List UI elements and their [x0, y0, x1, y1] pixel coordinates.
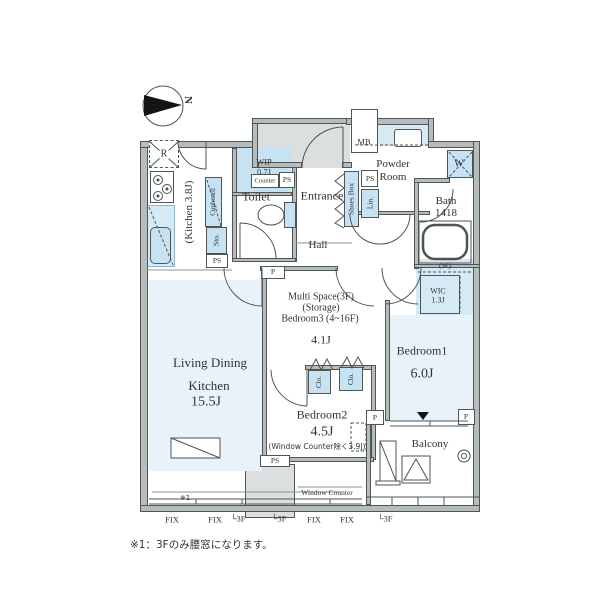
drain-icon [458, 450, 470, 462]
wic-hanger-label: (W) [439, 262, 451, 270]
window-label: FIX [307, 515, 321, 524]
footnote: ※1：3Fのみ腰窓になります。 [130, 537, 273, 552]
wall [366, 421, 371, 505]
window-label: FIX [340, 515, 354, 524]
window-label: └3F [378, 514, 393, 523]
cupboard-label: Cupboard [209, 188, 217, 216]
bathtub-icon [419, 221, 471, 263]
pillar-label: P [271, 268, 275, 276]
balcony-label: Balcony [412, 438, 449, 450]
window-counter-label: Window Counter [301, 489, 353, 497]
ps-label: PS [366, 175, 374, 183]
ldk-label-2: Kitchen [188, 379, 229, 393]
floor-plan: N (Kitchen 3.8J) WIP 0.7J Counter PS Toi… [0, 0, 606, 601]
multi-space-label-3: Bedroom3 (4~16F) [281, 314, 358, 325]
counter-label: Counter [255, 177, 276, 184]
kitchen-label: (Kitchen 3.8J) [183, 181, 195, 244]
wall [232, 148, 237, 262]
wall [140, 505, 480, 512]
kitchen-sink [150, 227, 171, 264]
wall [342, 162, 352, 168]
wall [414, 178, 450, 183]
compass-north-label: N [182, 96, 194, 104]
entrance-label: Entrance [301, 189, 344, 202]
bath-size: 1418 [435, 207, 457, 219]
stove [150, 171, 174, 203]
window-label: └3F [231, 514, 246, 523]
multi-space-label-2: (Storage) [302, 303, 339, 314]
ldk-label-1: Living Dining [173, 356, 247, 370]
wall [473, 141, 480, 512]
hall-label: Hall [309, 239, 328, 251]
ldk-size: 15.5J [191, 394, 221, 409]
wic-size: 1.3J [431, 297, 444, 306]
balcony-details [366, 412, 480, 505]
pillar-label: P [373, 414, 377, 422]
toilet-icon [258, 205, 284, 225]
ps-label: PS [283, 176, 291, 184]
window-label: FIX [165, 515, 179, 524]
powder-sink [394, 129, 422, 147]
slop-sink-icon [380, 441, 396, 481]
compass-icon [143, 86, 183, 126]
window-label: FIX [208, 515, 222, 524]
bath-label: Bath [436, 195, 457, 207]
ps-label: PS [271, 457, 279, 465]
meter-box-label: MB [357, 137, 370, 146]
closet-label: Clo. [347, 373, 355, 385]
ldk-floor [149, 280, 262, 471]
wall [262, 278, 267, 460]
shoes-box-label: Shoes Box [347, 183, 356, 215]
multi-space-size: 4.1J [311, 333, 331, 346]
mark1-label: ※1 [180, 495, 190, 503]
linen-label: Lin. [366, 197, 375, 209]
multi-space-label-1: Multi Space(3F) [288, 292, 354, 303]
ps-label: PS [213, 257, 221, 265]
window-label: └3F [272, 514, 287, 523]
wip-size: 0.7J [257, 167, 271, 176]
wip-label: WIP [256, 157, 272, 166]
closet-label: Clo. [315, 376, 323, 388]
powder-room-label-2: Room [380, 171, 407, 183]
refrigerator-label: R [160, 149, 169, 160]
bedroom2-label: Bedroom2 [297, 408, 348, 421]
pillar-label: P [464, 413, 468, 421]
toilet-label: Toilet [242, 190, 270, 203]
wall [385, 300, 390, 421]
evacuation-hatch-icon [402, 456, 430, 483]
wall [140, 141, 148, 512]
bedroom2-note: (Window Counter除く3.9J) [269, 443, 366, 451]
bedroom1-label: Bedroom1 [397, 344, 448, 357]
bedroom1-size: 6.0J [411, 366, 434, 381]
storage-label: Sto. [212, 234, 221, 246]
bedroom2-size: 4.5J [311, 424, 334, 439]
toilet-tank [284, 202, 296, 228]
powder-room-label-1: Powder [376, 158, 410, 170]
washer-label: W [454, 159, 463, 170]
wall [252, 118, 350, 124]
wall [232, 258, 296, 262]
wall [414, 180, 419, 269]
